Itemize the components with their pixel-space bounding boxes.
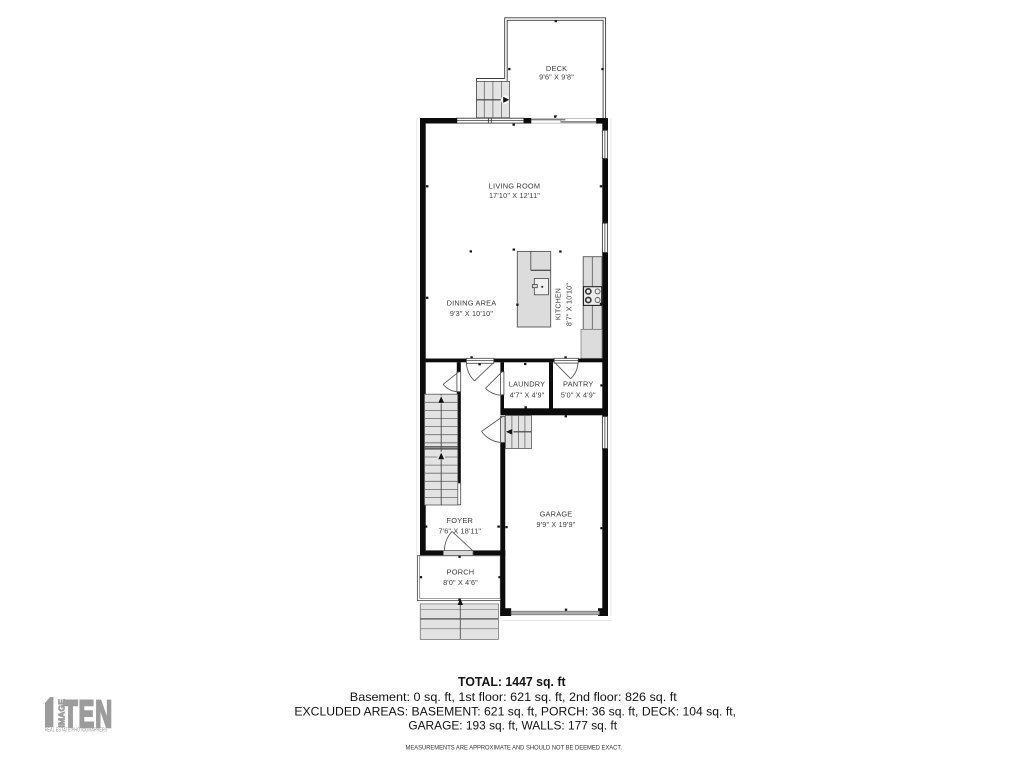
svg-text:7'6" X 18'11": 7'6" X 18'11" [438,527,481,536]
svg-text:DINING AREA: DINING AREA [447,299,497,308]
svg-text:8'0" X 4'6": 8'0" X 4'6" [443,578,478,587]
svg-text:8'7" X 10'10": 8'7" X 10'10" [565,283,574,326]
svg-text:PORCH: PORCH [447,567,475,576]
svg-text:GARAGE: 193 sq. ft, WALLS: 177: GARAGE: 193 sq. ft, WALLS: 177 sq. ft [408,719,617,733]
svg-text:KITCHEN: KITCHEN [556,288,563,320]
svg-text:LIVING ROOM: LIVING ROOM [489,181,540,190]
svg-text:4'7" X 4'9": 4'7" X 4'9" [510,391,545,400]
svg-text:EXCLUDED AREAS: BASEMENT: 621: EXCLUDED AREAS: BASEMENT: 621 sq. ft, PO… [294,704,736,718]
svg-text:17'10" X 12'11": 17'10" X 12'11" [489,191,540,200]
svg-text:9'9" X 19'9": 9'9" X 19'9" [536,520,575,529]
svg-text:9'3" X 10'10": 9'3" X 10'10" [450,309,493,318]
svg-text:REAL ESTATE PHOTOGRAPHERS: REAL ESTATE PHOTOGRAPHERS [45,728,108,734]
svg-text:MEASUREMENTS ARE APPROXIMATE A: MEASUREMENTS ARE APPROXIMATE AND SHOULD … [406,745,623,752]
svg-text:PANTRY: PANTRY [563,380,594,389]
svg-text:DECK: DECK [546,64,567,73]
svg-text:GARAGE: GARAGE [540,510,573,519]
svg-text:5'0" X 4'9": 5'0" X 4'9" [561,391,596,400]
svg-text:FOYER: FOYER [447,516,473,525]
svg-text:Basement: 0 sq. ft, 1st floor:: Basement: 0 sq. ft, 1st floor: 621 sq. f… [350,690,678,704]
svg-text:TOTAL: 1447 sq. ft: TOTAL: 1447 sq. ft [458,675,566,689]
svg-text:9'6" X 9'8": 9'6" X 9'8" [539,73,574,82]
svg-text:LAUNDRY: LAUNDRY [509,380,546,389]
